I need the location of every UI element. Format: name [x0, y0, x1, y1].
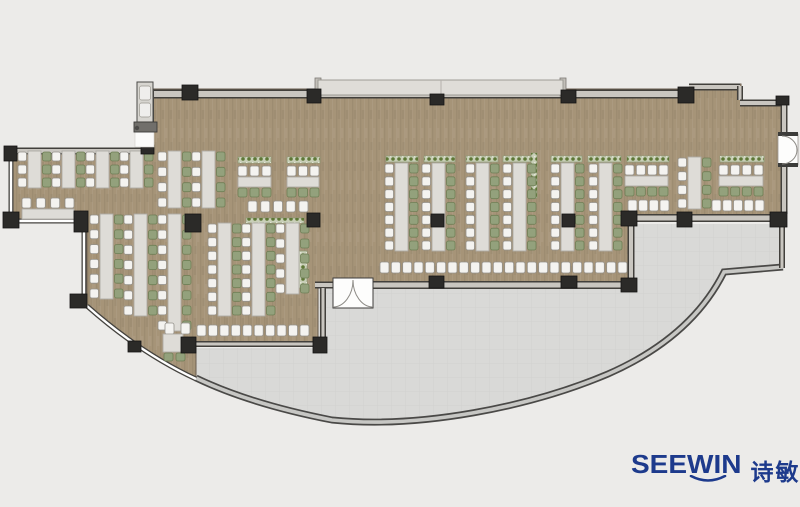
- chair-white: [242, 306, 251, 315]
- chair-white: [124, 245, 133, 254]
- seewin-logo: SEEWIN 诗敏: [631, 450, 800, 487]
- chair-white: [391, 262, 400, 273]
- chair-green: [528, 177, 537, 186]
- chair-green: [576, 177, 585, 186]
- structural-column: [182, 85, 198, 100]
- chair-green: [299, 188, 308, 197]
- chair-white: [385, 241, 394, 250]
- chair-white: [165, 323, 174, 334]
- chair-white: [385, 177, 394, 186]
- chair-white: [208, 251, 217, 260]
- chair-white: [503, 190, 512, 199]
- chair-green: [183, 152, 192, 161]
- chair-green: [301, 239, 310, 248]
- chair-white: [277, 325, 286, 336]
- chair-white: [274, 201, 283, 212]
- chair-white: [551, 177, 560, 186]
- floor-plan-canvas: SEEWIN 诗敏: [0, 0, 800, 507]
- chair-white: [589, 228, 598, 237]
- chair-green: [183, 167, 192, 176]
- chair-green: [719, 187, 728, 196]
- chair-white: [639, 200, 648, 211]
- door-jamb: [778, 163, 798, 167]
- chair-white: [744, 200, 753, 211]
- chair-green: [111, 152, 120, 161]
- chair-white: [242, 292, 251, 301]
- dining-table: [561, 163, 574, 251]
- chair-white: [734, 200, 743, 211]
- chair-white: [466, 241, 475, 250]
- planter-plants: [627, 156, 669, 162]
- chair-green: [43, 152, 52, 161]
- chair-green: [528, 215, 537, 224]
- planter-plants: [424, 156, 455, 162]
- structural-column: [307, 89, 321, 103]
- chair-green: [491, 203, 500, 212]
- chair-green: [233, 251, 242, 260]
- chair-green: [183, 198, 192, 207]
- chair-white: [385, 228, 394, 237]
- chair-white: [158, 198, 167, 207]
- chair-white: [286, 201, 295, 212]
- chair-green: [43, 178, 52, 187]
- chair-green: [217, 183, 226, 192]
- chair-green: [576, 203, 585, 212]
- chair-green: [267, 224, 276, 233]
- chair-white: [414, 262, 423, 273]
- chair-white: [158, 245, 167, 254]
- chair-white: [551, 164, 560, 173]
- chair-white: [503, 177, 512, 186]
- chair-green: [183, 245, 192, 254]
- structural-column: [770, 212, 787, 227]
- chair-white: [158, 306, 167, 315]
- planter-plants: [466, 156, 498, 162]
- chair-green: [233, 238, 242, 247]
- planter-plants: [287, 157, 320, 163]
- dining-table: [130, 151, 143, 188]
- chair-green: [614, 177, 623, 186]
- chair-white: [425, 262, 434, 273]
- chair-white: [551, 228, 560, 237]
- structural-column: [307, 213, 320, 227]
- chair-green: [410, 164, 419, 173]
- chair-white: [503, 203, 512, 212]
- chair-white: [238, 166, 247, 176]
- chair-white: [231, 325, 240, 336]
- chair-green: [410, 241, 419, 250]
- chair-white: [466, 164, 475, 173]
- chair-green: [528, 228, 537, 237]
- chair-green: [447, 228, 456, 237]
- chair-white: [90, 259, 99, 268]
- chair-green: [149, 230, 158, 239]
- chair-green: [491, 190, 500, 199]
- chair-white: [437, 262, 446, 273]
- chair-white: [242, 224, 251, 233]
- structural-column: [621, 278, 637, 292]
- chair-white: [607, 262, 616, 273]
- chair-green: [659, 187, 668, 196]
- structural-column: [3, 212, 19, 228]
- panel-slot: [140, 103, 151, 117]
- chair-white: [550, 262, 559, 273]
- side-door: [778, 134, 798, 165]
- chair-white: [466, 190, 475, 199]
- chair-green: [447, 241, 456, 250]
- chair-white: [422, 241, 431, 250]
- dining-table: [96, 151, 109, 188]
- chair-white: [595, 262, 604, 273]
- chair-green: [238, 188, 247, 197]
- chair-white: [242, 251, 251, 260]
- chair-green: [115, 274, 124, 283]
- chair-white: [300, 325, 309, 336]
- dining-table: [513, 163, 526, 251]
- planter-plants: [503, 156, 531, 162]
- structural-column: [677, 212, 692, 227]
- chair-white: [158, 167, 167, 176]
- chair-green: [754, 187, 763, 196]
- chair-white: [589, 215, 598, 224]
- chair-white: [466, 177, 475, 186]
- chair-white: [754, 165, 763, 175]
- chair-green: [217, 152, 226, 161]
- dining-table: [287, 177, 319, 187]
- chair-white: [551, 190, 560, 199]
- chair-green: [614, 190, 623, 199]
- chair-white: [90, 245, 99, 254]
- chair-white: [625, 165, 634, 175]
- chair-white: [208, 325, 217, 336]
- dining-table: [719, 176, 763, 186]
- chair-green: [310, 188, 319, 197]
- chair-white: [503, 215, 512, 224]
- structural-column: [4, 146, 17, 161]
- chair-green: [576, 190, 585, 199]
- chair-green: [528, 203, 537, 212]
- chair-green: [267, 265, 276, 274]
- structural-column: [429, 276, 444, 288]
- chair-white: [192, 152, 201, 161]
- chair-white: [242, 238, 251, 247]
- structural-column: [562, 214, 575, 227]
- chair-green: [233, 306, 242, 315]
- chair-white: [262, 166, 271, 176]
- chair-white: [287, 166, 296, 176]
- chair-white: [120, 165, 129, 174]
- chair-green: [447, 190, 456, 199]
- chair-white: [18, 152, 27, 161]
- chair-green: [410, 215, 419, 224]
- chair-white: [192, 183, 201, 192]
- chair-green: [77, 178, 86, 187]
- chair-green: [115, 259, 124, 268]
- chair-white: [589, 241, 598, 250]
- structural-column: [185, 214, 201, 232]
- chair-white: [276, 269, 285, 278]
- chair-green: [176, 353, 185, 361]
- chair-green: [149, 291, 158, 300]
- chair-green: [267, 306, 276, 315]
- chair-green: [703, 172, 712, 181]
- chair-white: [90, 289, 99, 298]
- chair-green: [703, 185, 712, 194]
- chair-white: [678, 185, 687, 194]
- dining-table: [28, 151, 41, 188]
- chair-white: [551, 203, 560, 212]
- chair-white: [158, 230, 167, 239]
- chair-white: [158, 291, 167, 300]
- chair-green: [447, 164, 456, 173]
- chair-green: [115, 245, 124, 254]
- chair-white: [90, 215, 99, 224]
- chair-white: [158, 260, 167, 269]
- chair-white: [380, 262, 389, 273]
- chair-white: [466, 215, 475, 224]
- logo-cn-text: 诗敏: [750, 453, 800, 487]
- planter-plants: [246, 218, 304, 223]
- chair-white: [584, 262, 593, 273]
- chair-white: [589, 164, 598, 173]
- chair-white: [493, 262, 502, 273]
- chair-white: [90, 274, 99, 283]
- chair-white: [659, 165, 668, 175]
- chair-green: [233, 279, 242, 288]
- structural-column: [431, 214, 444, 227]
- chair-white: [742, 165, 751, 175]
- chair-white: [385, 203, 394, 212]
- chair-green: [183, 306, 192, 315]
- structural-column: [561, 90, 576, 103]
- chair-green: [183, 260, 192, 269]
- dining-table: [168, 214, 181, 331]
- chair-green: [614, 241, 623, 250]
- chair-green: [301, 254, 310, 263]
- chair-white: [299, 166, 308, 176]
- chair-white: [660, 200, 669, 211]
- chair-white: [503, 164, 512, 173]
- chair-white: [65, 198, 74, 208]
- chair-green: [491, 164, 500, 173]
- chair-green: [145, 165, 154, 174]
- chair-white: [181, 323, 190, 334]
- chair-green: [111, 178, 120, 187]
- chair-white: [422, 177, 431, 186]
- chair-green: [614, 164, 623, 173]
- chair-white: [503, 228, 512, 237]
- chair-green: [115, 230, 124, 239]
- chair-white: [158, 276, 167, 285]
- chair-green: [183, 276, 192, 285]
- chair-green: [183, 183, 192, 192]
- structural-column: [128, 341, 141, 352]
- logo-smile-icon: [689, 475, 727, 485]
- chair-green: [614, 203, 623, 212]
- chair-white: [422, 215, 431, 224]
- chair-green: [410, 228, 419, 237]
- chair-white: [385, 190, 394, 199]
- structural-column: [776, 96, 789, 105]
- door-opening: [135, 132, 154, 147]
- chair-green: [43, 165, 52, 174]
- chair-green: [703, 199, 712, 208]
- chair-white: [86, 152, 95, 161]
- chair-green: [267, 279, 276, 288]
- chair-green: [217, 167, 226, 176]
- chair-white: [208, 224, 217, 233]
- chair-green: [111, 165, 120, 174]
- chair-green: [149, 215, 158, 224]
- chair-white: [242, 279, 251, 288]
- chair-white: [276, 254, 285, 263]
- chair-white: [589, 203, 598, 212]
- chair-white: [551, 215, 560, 224]
- chair-green: [233, 224, 242, 233]
- chair-green: [301, 284, 310, 293]
- chair-white: [471, 262, 480, 273]
- dining-table: [252, 223, 265, 316]
- chair-white: [158, 152, 167, 161]
- chair-green: [491, 241, 500, 250]
- chair-white: [254, 325, 263, 336]
- chair-green: [233, 265, 242, 274]
- chair-white: [52, 178, 61, 187]
- chair-white: [719, 165, 728, 175]
- structural-column: [181, 337, 196, 353]
- chair-green: [614, 228, 623, 237]
- chair-white: [18, 165, 27, 174]
- chair-white: [124, 306, 133, 315]
- chair-white: [36, 198, 45, 208]
- dining-table: [62, 151, 75, 188]
- chair-green: [648, 187, 657, 196]
- chair-green: [250, 188, 259, 197]
- planter-plants: [588, 156, 621, 162]
- chair-white: [628, 200, 637, 211]
- structural-column: [621, 211, 637, 226]
- chair-white: [266, 325, 275, 336]
- chair-green: [576, 241, 585, 250]
- chair-white: [636, 165, 645, 175]
- chair-green: [115, 215, 124, 224]
- chair-white: [220, 325, 229, 336]
- chair-white: [299, 201, 308, 212]
- panel-knob: [135, 126, 139, 130]
- chair-white: [124, 261, 133, 270]
- dining-table: [22, 209, 74, 219]
- chair-white: [18, 178, 27, 187]
- chair-green: [267, 238, 276, 247]
- chair-white: [422, 228, 431, 237]
- planter-plants: [720, 156, 764, 162]
- planter-plants: [386, 156, 418, 162]
- chair-white: [120, 178, 129, 187]
- chair-green: [267, 251, 276, 260]
- chair-green: [267, 292, 276, 301]
- chair-green: [183, 291, 192, 300]
- structural-column: [561, 276, 577, 288]
- chair-white: [197, 325, 206, 336]
- chair-white: [589, 177, 598, 186]
- chair-white: [208, 265, 217, 274]
- chair-white: [51, 198, 60, 208]
- chair-white: [589, 190, 598, 199]
- chair-white: [158, 215, 167, 224]
- panel-slot: [140, 86, 151, 100]
- chair-green: [528, 190, 537, 199]
- chair-green: [528, 241, 537, 250]
- chair-green: [149, 306, 158, 315]
- chair-white: [289, 325, 298, 336]
- chair-white: [86, 178, 95, 187]
- chair-white: [52, 165, 61, 174]
- chair-white: [52, 152, 61, 161]
- chair-white: [90, 230, 99, 239]
- chair-white: [527, 262, 536, 273]
- chair-white: [208, 306, 217, 315]
- dining-table: [202, 151, 215, 208]
- dining-table: [163, 334, 183, 352]
- chair-white: [385, 215, 394, 224]
- dining-table: [168, 151, 181, 208]
- chair-green: [731, 187, 740, 196]
- chair-white: [466, 228, 475, 237]
- chair-green: [447, 177, 456, 186]
- chair-green: [703, 158, 712, 167]
- chair-green: [742, 187, 751, 196]
- dining-table: [625, 176, 668, 186]
- chair-white: [124, 276, 133, 285]
- chair-white: [505, 262, 514, 273]
- chair-white: [551, 241, 560, 250]
- chair-green: [164, 353, 173, 361]
- chair-white: [208, 279, 217, 288]
- chair-green: [77, 165, 86, 174]
- chair-white: [158, 183, 167, 192]
- chair-white: [516, 262, 525, 273]
- chair-white: [120, 152, 129, 161]
- chair-white: [649, 200, 658, 211]
- chair-green: [217, 198, 226, 207]
- chair-white: [261, 201, 270, 212]
- chair-white: [86, 165, 95, 174]
- chair-white: [618, 262, 627, 273]
- chair-green: [576, 228, 585, 237]
- chair-white: [648, 165, 657, 175]
- chair-green: [233, 292, 242, 301]
- dining-table: [134, 214, 147, 316]
- chair-green: [149, 276, 158, 285]
- chair-green: [491, 215, 500, 224]
- chair-green: [447, 215, 456, 224]
- structural-column: [70, 294, 87, 308]
- chair-white: [459, 262, 468, 273]
- chair-white: [385, 164, 394, 173]
- chair-white: [448, 262, 457, 273]
- chair-green: [149, 245, 158, 254]
- chair-white: [22, 198, 31, 208]
- structural-column: [430, 94, 444, 105]
- chair-green: [447, 203, 456, 212]
- chair-white: [422, 203, 431, 212]
- planter-plants: [551, 156, 582, 162]
- dining-table: [286, 223, 299, 294]
- floor-plan-drawing: [0, 0, 800, 507]
- chair-white: [124, 230, 133, 239]
- dining-table: [688, 157, 701, 209]
- chair-green: [262, 188, 271, 197]
